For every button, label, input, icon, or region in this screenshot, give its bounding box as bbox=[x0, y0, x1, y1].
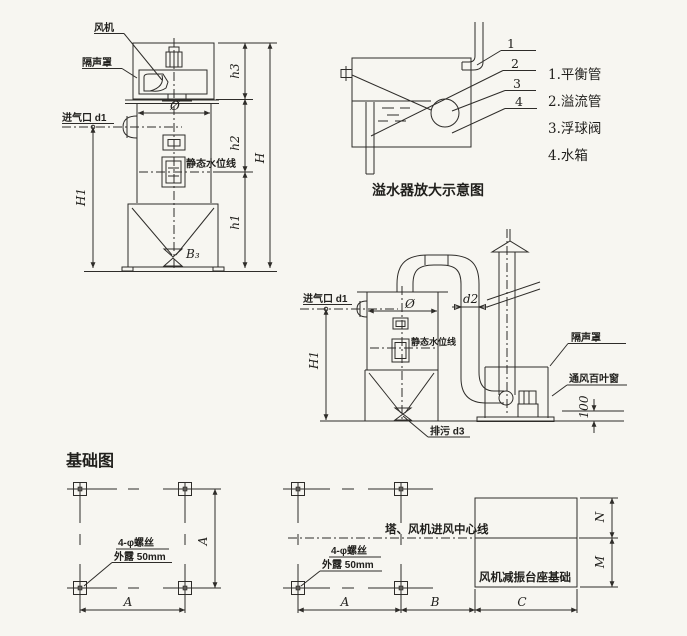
enclosure-label: 隔声罩 bbox=[82, 56, 112, 69]
drawing-canvas: 风机 隔声罩 Ø 进气口 d1 H1 静态水位线 bbox=[0, 0, 687, 636]
hopper-label: B₃ bbox=[185, 247, 200, 261]
pedestal-label: 风机减振台座基础 bbox=[479, 570, 571, 584]
front-diameter-symbol: Ø bbox=[169, 99, 181, 113]
dim-H1-front: H1 bbox=[74, 188, 88, 207]
chimney-cap bbox=[492, 241, 528, 252]
foundation-plan-left: 4-φ螺丝 外露 50mm A A bbox=[67, 483, 221, 614]
water-box bbox=[352, 58, 471, 147]
dim-d2: d2 bbox=[463, 292, 478, 306]
tower-front-view: 风机 隔声罩 Ø 进气口 d1 H1 静态水位线 bbox=[62, 21, 277, 272]
dim-N: N bbox=[593, 511, 607, 523]
callout-4: 4 bbox=[515, 94, 523, 109]
engineering-drawing-page: 风机 隔声罩 Ø 进气口 d1 H1 静态水位线 bbox=[0, 0, 687, 636]
break-mark bbox=[487, 282, 540, 300]
side-inlet-label: 进气口 d1 bbox=[303, 292, 348, 305]
side-diameter-symbol: Ø bbox=[404, 297, 416, 311]
float-arm bbox=[352, 75, 431, 110]
dim-A: A bbox=[340, 595, 350, 609]
foundation-heading: 基础图 bbox=[65, 451, 114, 470]
dim-A-vertical: A bbox=[196, 536, 210, 546]
overflow-detail-view: 1 2 3 4 溢水器放大示意图 bbox=[341, 22, 537, 198]
side-fan-motor bbox=[519, 391, 536, 404]
dim-M: M bbox=[593, 555, 607, 569]
legend-item-3: 3.浮球阀 bbox=[548, 121, 601, 137]
fan-label: 风机 bbox=[94, 21, 114, 34]
inlet-label: 进气口 d1 bbox=[62, 111, 107, 124]
legend-item-4: 4.水箱 bbox=[548, 148, 588, 164]
dim-100: 100 bbox=[577, 395, 591, 418]
bolt-note-line2: 外露 50mm bbox=[113, 550, 166, 563]
overflow-caption: 溢水器放大示意图 bbox=[372, 182, 484, 198]
dim-h1: h1 bbox=[228, 214, 242, 229]
water-surface bbox=[352, 101, 431, 121]
foundation-plan-right: 塔、风机进风中心线 4-φ螺丝 外露 50mm 风机减振台座基础 N M A B… bbox=[283, 483, 618, 614]
water-tank bbox=[122, 204, 224, 271]
legend-item-2: 2.溢流管 bbox=[548, 94, 601, 110]
bolt-note-line1: 4-φ螺丝 bbox=[118, 536, 154, 549]
chimney-stack bbox=[487, 229, 540, 416]
callout-2: 2 bbox=[511, 56, 519, 71]
side-enclosure-label: 隔声罩 bbox=[571, 331, 601, 344]
callout-3: 3 bbox=[513, 76, 521, 91]
callout-1: 1 bbox=[507, 36, 515, 51]
dim-C: C bbox=[517, 595, 526, 609]
dim-B: B bbox=[430, 595, 440, 609]
dim-h3: h3 bbox=[228, 63, 242, 79]
drain-label: 排污 d3 bbox=[430, 425, 465, 438]
float-ball bbox=[431, 99, 459, 127]
louver-label: 通风百叶窗 bbox=[569, 372, 619, 385]
fan-scroll bbox=[139, 70, 207, 101]
overflow-legend: 1.平衡管 2.溢流管 3.浮球阀 4.水箱 bbox=[548, 67, 601, 164]
elbow-duct bbox=[397, 255, 504, 403]
water-line-label: 静态水位线 bbox=[186, 157, 236, 170]
dim-H: H bbox=[253, 152, 267, 164]
legend-item-1: 1.平衡管 bbox=[548, 67, 601, 83]
dim-h2: h2 bbox=[228, 135, 242, 150]
side-water-line-label: 静态水位线 bbox=[411, 336, 456, 347]
dim-H1-side: H1 bbox=[307, 351, 321, 370]
bolt-note-line2: 外露 50mm bbox=[321, 558, 374, 571]
tower-side-view: 进气口 d1 H1 Ø d2 bbox=[300, 229, 627, 438]
bolt-note-line1: 4-φ螺丝 bbox=[331, 544, 367, 557]
centerline-label: 塔、风机进风中心线 bbox=[385, 522, 489, 536]
dim-A-horizontal: A bbox=[123, 595, 133, 609]
overflow-pipe bbox=[366, 102, 374, 174]
